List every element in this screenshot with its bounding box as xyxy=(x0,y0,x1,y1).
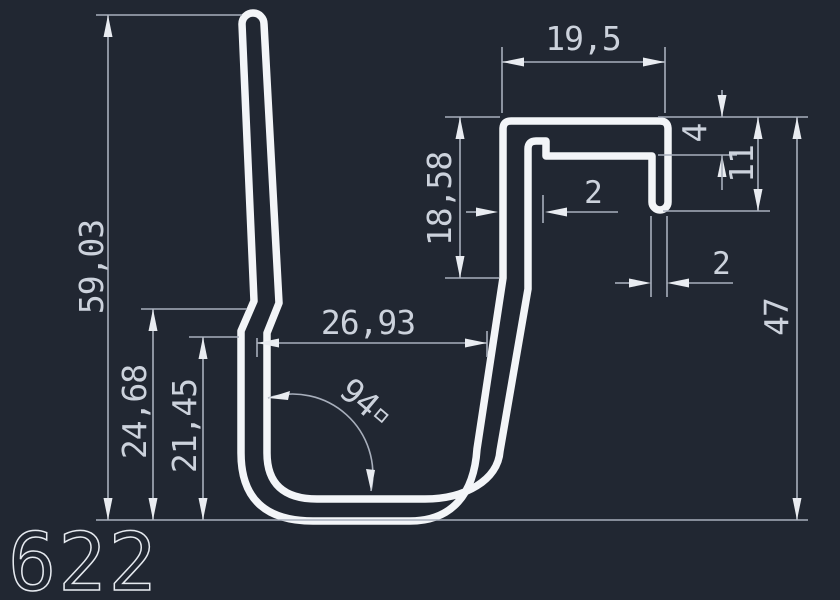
dim-finger-thickness: 2 xyxy=(615,216,733,297)
dim-text-ledge-offset: 4 xyxy=(675,123,714,142)
dim-wall-thickness: 2 xyxy=(466,175,618,223)
profile xyxy=(241,13,668,521)
dim-bottom-angle: 94 xyxy=(268,370,397,491)
arrow-left-icon xyxy=(545,208,567,217)
dim-text-right-height: 47 xyxy=(757,298,796,336)
angle-label-group: 94 xyxy=(332,370,397,433)
arrow-right-icon xyxy=(643,58,665,67)
dim-text-total-height: 59,03 xyxy=(72,220,111,314)
dim-text-inner-step: 21,45 xyxy=(165,379,204,473)
arrow-right-icon xyxy=(629,279,651,288)
dim-text-hook-depth: 18,58 xyxy=(420,152,459,246)
arrow-right-icon xyxy=(465,339,487,348)
dim-inner-step-height: 21,45 xyxy=(165,337,239,520)
arrow-left-icon xyxy=(502,58,524,67)
arrow-down-icon xyxy=(456,256,465,278)
dim-text-hook-width: 19,5 xyxy=(545,19,620,58)
arrow-down-icon xyxy=(199,498,208,520)
arrow-up-icon xyxy=(456,117,465,139)
arrow-up-icon xyxy=(754,117,763,139)
arrow-left-icon xyxy=(667,279,689,288)
dim-right-height: 47 xyxy=(757,117,802,520)
arrow-left-icon xyxy=(268,391,290,400)
cad-canvas: 59,03 24,68 21,45 26,93 94 xyxy=(0,0,840,600)
dim-opening-width: 26,93 xyxy=(257,303,487,357)
dim-hook-width: 19,5 xyxy=(502,19,665,113)
arrow-down-icon xyxy=(793,498,802,520)
dim-text-finger-thickness: 2 xyxy=(712,246,730,282)
dim-text-outer-step: 24,68 xyxy=(115,365,154,459)
dim-text-opening-width: 26,93 xyxy=(321,303,415,342)
arrow-down-icon xyxy=(366,469,375,491)
arrow-down-icon xyxy=(754,189,763,211)
profile-outline xyxy=(241,13,668,521)
dim-text-finger-length: 11 xyxy=(722,145,761,183)
arrow-right-icon xyxy=(476,208,498,217)
dim-text-wall-thickness: 2 xyxy=(584,175,602,211)
part-number-label: 622 xyxy=(8,516,159,600)
arrow-up-icon xyxy=(104,15,113,37)
dim-text-angle: 94 xyxy=(332,370,386,424)
arrow-down-icon xyxy=(718,95,727,117)
arrow-up-icon xyxy=(199,337,208,359)
arrow-up-icon xyxy=(149,309,158,331)
arrow-up-icon xyxy=(793,117,802,139)
dim-hook-depth: 18,58 xyxy=(420,117,500,278)
degree-symbol xyxy=(375,409,388,422)
dim-total-height: 59,03 xyxy=(72,15,242,520)
